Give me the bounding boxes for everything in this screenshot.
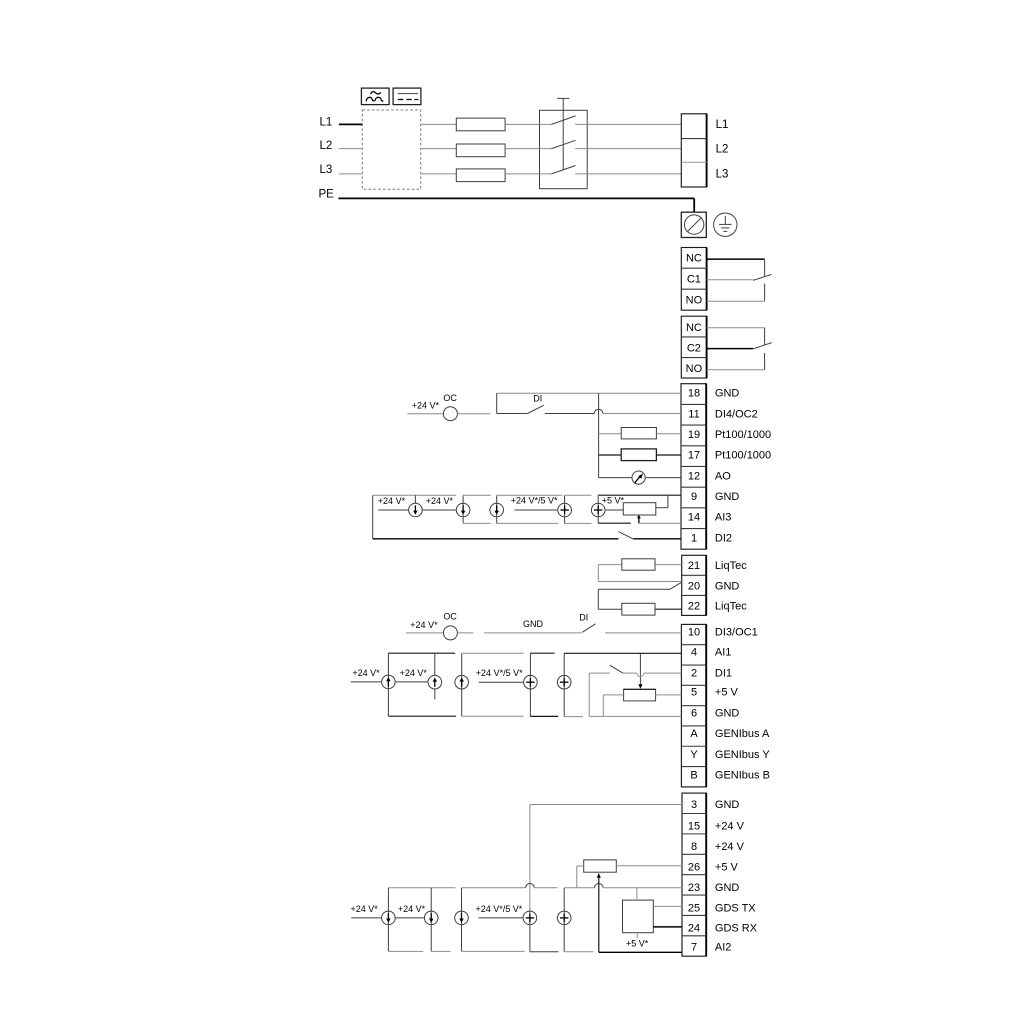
svg-text:19: 19 (688, 429, 700, 441)
svg-text:A: A (690, 728, 698, 740)
svg-text:+24 V*: +24 V* (412, 400, 440, 410)
svg-text:DI3/OC1: DI3/OC1 (715, 627, 758, 639)
svg-text:L2: L2 (320, 140, 333, 152)
svg-text:4: 4 (691, 647, 697, 659)
svg-text:21: 21 (688, 560, 700, 572)
svg-text:GDS RX: GDS RX (715, 922, 758, 934)
svg-text:DI4/OC2: DI4/OC2 (715, 408, 758, 420)
svg-text:C1: C1 (687, 273, 701, 285)
svg-text:+24 V*: +24 V* (426, 496, 454, 506)
svg-text:GDS TX: GDS TX (715, 902, 756, 914)
svg-text:15: 15 (688, 820, 700, 832)
svg-text:AI2: AI2 (715, 942, 732, 954)
svg-text:GENIbus Y: GENIbus Y (715, 749, 770, 761)
svg-text:L1: L1 (716, 119, 729, 131)
svg-text:+24 V*: +24 V* (378, 496, 406, 506)
svg-text:NO: NO (686, 363, 703, 375)
svg-text:+24 V*/5 V*: +24 V*/5 V* (511, 496, 558, 506)
svg-text:L3: L3 (716, 169, 729, 181)
svg-text:25: 25 (688, 902, 700, 914)
svg-text:7: 7 (691, 942, 697, 954)
svg-text:LiqTec: LiqTec (715, 560, 747, 572)
svg-text:L1: L1 (320, 117, 333, 129)
svg-text:C2: C2 (687, 343, 701, 355)
svg-text:5: 5 (691, 686, 697, 698)
svg-text:GENIbus A: GENIbus A (715, 728, 770, 740)
svg-text:+5 V: +5 V (715, 861, 739, 873)
svg-text:GND: GND (715, 491, 740, 503)
svg-text:+24 V*: +24 V* (410, 620, 438, 630)
svg-text:GND: GND (715, 580, 740, 592)
svg-text:NO: NO (686, 294, 703, 306)
svg-text:+5 V: +5 V (715, 686, 739, 698)
svg-text:12: 12 (688, 470, 700, 482)
svg-text:+24 V: +24 V (715, 820, 745, 832)
svg-text:+24 V*/5 V*: +24 V*/5 V* (476, 668, 523, 678)
svg-text:+5 V*: +5 V* (602, 495, 625, 505)
svg-text:PE: PE (319, 189, 335, 201)
svg-text:Y: Y (690, 749, 698, 761)
svg-text:DI: DI (579, 612, 588, 622)
svg-text:2: 2 (691, 667, 697, 679)
svg-text:DI: DI (533, 394, 542, 404)
svg-text:3: 3 (691, 799, 697, 811)
svg-text:+24 V*: +24 V* (398, 904, 426, 914)
svg-text:20: 20 (688, 580, 700, 592)
svg-text:OC: OC (443, 611, 457, 621)
svg-text:GND: GND (715, 799, 740, 811)
svg-text:AI1: AI1 (715, 647, 732, 659)
svg-text:DI2: DI2 (715, 532, 732, 544)
svg-text:DI1: DI1 (715, 667, 732, 679)
svg-text:+24 V*: +24 V* (352, 668, 380, 678)
svg-text:1: 1 (691, 532, 697, 544)
svg-text:17: 17 (688, 450, 700, 462)
svg-text:L3: L3 (320, 164, 333, 176)
svg-text:+5 V*: +5 V* (626, 938, 649, 948)
svg-text:+24 V*/5 V*: +24 V*/5 V* (476, 904, 523, 914)
svg-text:18: 18 (688, 388, 700, 400)
svg-text:L2: L2 (716, 143, 729, 155)
svg-text:10: 10 (688, 627, 700, 639)
svg-text:22: 22 (688, 600, 700, 612)
svg-text:OC: OC (443, 393, 457, 403)
svg-text:+24 V: +24 V (715, 841, 745, 853)
svg-text:11: 11 (688, 408, 699, 420)
svg-text:NC: NC (686, 322, 702, 334)
svg-text:NC: NC (686, 253, 702, 265)
svg-text:GND: GND (715, 388, 740, 400)
svg-text:GND: GND (715, 708, 740, 720)
svg-text:+24 V*: +24 V* (400, 668, 428, 678)
svg-text:GND: GND (523, 619, 544, 629)
svg-text:B: B (690, 770, 697, 782)
svg-text:LiqTec: LiqTec (715, 600, 747, 612)
svg-text:GENIbus B: GENIbus B (715, 770, 770, 782)
svg-text:+24 V*: +24 V* (351, 904, 379, 914)
svg-text:9: 9 (691, 491, 697, 503)
svg-text:6: 6 (691, 708, 697, 720)
svg-text:Pt100/1000: Pt100/1000 (715, 450, 771, 462)
svg-text:24: 24 (688, 922, 700, 934)
svg-text:8: 8 (691, 841, 697, 853)
svg-text:26: 26 (688, 861, 700, 873)
svg-text:GND: GND (715, 882, 740, 894)
svg-text:14: 14 (688, 512, 700, 524)
svg-text:Pt100/1000: Pt100/1000 (715, 429, 771, 441)
svg-text:23: 23 (688, 882, 700, 894)
svg-text:AI3: AI3 (715, 512, 732, 524)
svg-text:AO: AO (715, 470, 731, 482)
